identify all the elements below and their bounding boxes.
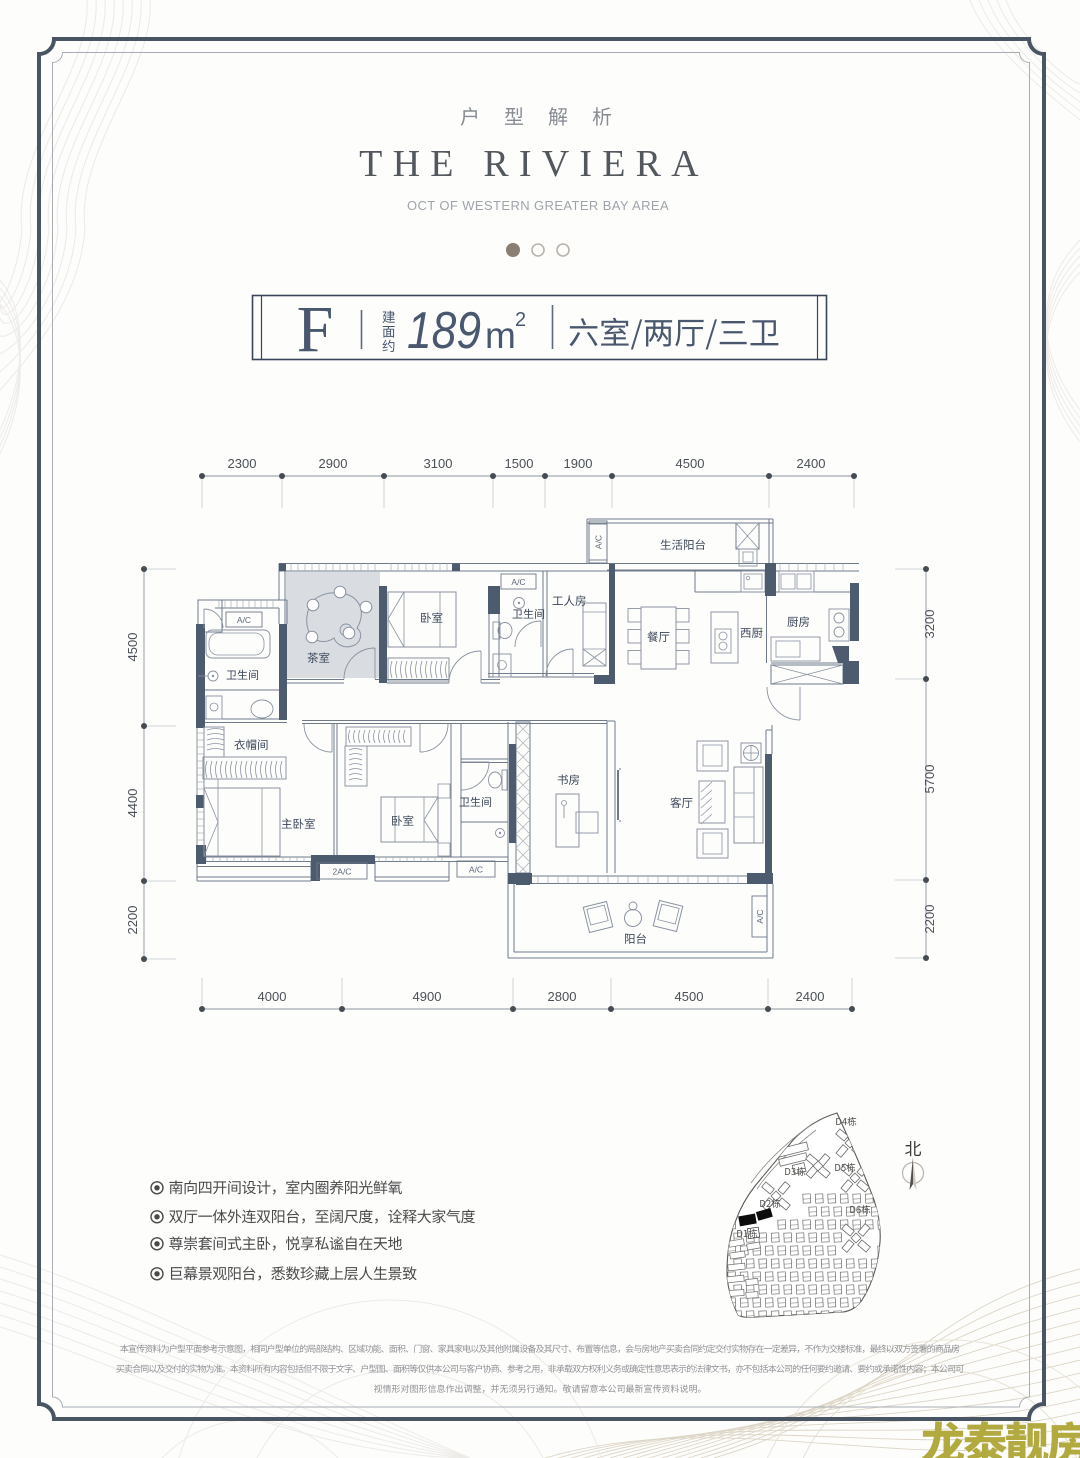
svg-text:189: 189 <box>407 302 481 360</box>
svg-text:4500: 4500 <box>676 456 705 471</box>
svg-text:3200: 3200 <box>922 610 937 639</box>
svg-text:3100: 3100 <box>424 456 453 471</box>
svg-text:1500: 1500 <box>505 456 534 471</box>
svg-text:A/C: A/C <box>755 909 765 923</box>
svg-text:2200: 2200 <box>922 905 937 934</box>
svg-text:4500: 4500 <box>675 989 704 1004</box>
svg-text:A/C: A/C <box>237 615 251 625</box>
svg-text:2400: 2400 <box>796 989 825 1004</box>
svg-text:4000: 4000 <box>258 989 287 1004</box>
svg-text:4400: 4400 <box>125 789 140 818</box>
svg-text:A/C: A/C <box>511 577 525 587</box>
svg-text:2400: 2400 <box>797 456 826 471</box>
svg-text:OCT OF WESTERN GREATER BAY ARE: OCT OF WESTERN GREATER BAY AREA <box>407 198 669 213</box>
svg-text:5700: 5700 <box>922 765 937 794</box>
svg-text:2A/C: 2A/C <box>333 867 352 877</box>
svg-text:THE RIVIERA: THE RIVIERA <box>359 143 709 185</box>
svg-text:4900: 4900 <box>413 989 442 1004</box>
svg-text:1900: 1900 <box>564 456 593 471</box>
svg-text:2300: 2300 <box>228 456 257 471</box>
svg-text:2: 2 <box>515 309 526 331</box>
svg-text:m: m <box>485 315 516 356</box>
svg-text:F: F <box>297 293 334 366</box>
svg-text:4500: 4500 <box>125 633 140 662</box>
svg-text:A/C: A/C <box>469 865 483 875</box>
svg-text:2200: 2200 <box>125 906 140 935</box>
svg-text:A/C: A/C <box>594 535 604 549</box>
svg-text:2900: 2900 <box>319 456 348 471</box>
svg-text:2800: 2800 <box>548 989 577 1004</box>
